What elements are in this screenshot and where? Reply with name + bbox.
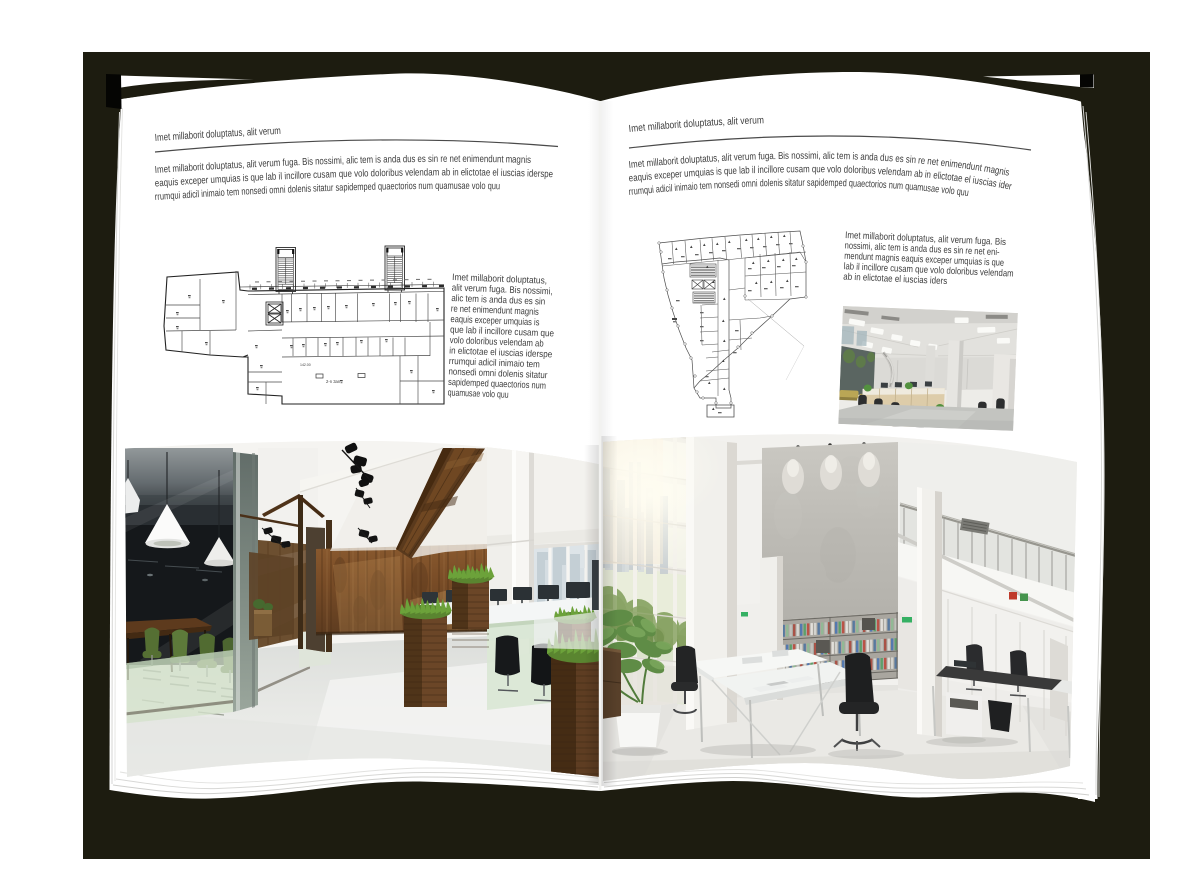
svg-text:2-n 3an: 2-n 3an xyxy=(326,379,341,384)
svg-text:quamusae volo quu: quamusae volo quu xyxy=(447,386,508,399)
svg-text:142.00: 142.00 xyxy=(300,363,311,367)
